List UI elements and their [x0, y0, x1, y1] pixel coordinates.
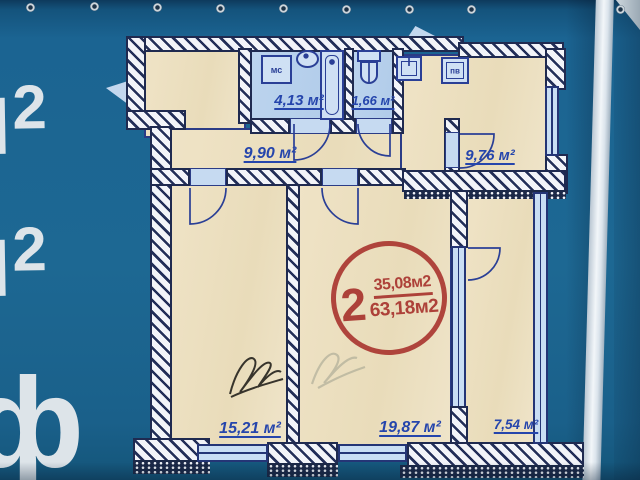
door-sill-bathroom	[290, 118, 330, 134]
door-sill-living	[322, 168, 358, 186]
watermark-m2: м2	[0, 213, 48, 308]
wall-kitchen-bottom	[402, 170, 566, 192]
grommet-icon	[26, 3, 35, 12]
window-bedroom	[197, 444, 268, 462]
watermark-letter: ф	[0, 352, 84, 480]
door-sill-bedroom	[190, 168, 226, 186]
banner-bottom-shadow	[0, 462, 640, 480]
sink-icon	[296, 50, 319, 68]
watermark-m2: м2	[0, 71, 48, 166]
wall-kitchen-right-upper	[545, 48, 566, 90]
window-balcony-glazing	[533, 192, 548, 444]
stamp-rooms-count: 2	[339, 281, 368, 329]
grommet-icon	[342, 5, 351, 14]
wall-hall-bathroom	[238, 48, 252, 124]
area-label-living: 19,87 м²	[350, 419, 470, 437]
banner-right-edge	[614, 0, 640, 480]
washing-machine-icon: мс	[261, 55, 292, 84]
room-bedroom	[170, 184, 288, 446]
wall-top	[126, 36, 464, 52]
area-label-hall: 9,90 м²	[200, 145, 340, 163]
grommet-icon	[153, 3, 162, 12]
grommet-icon	[90, 2, 99, 11]
area-label-kitchen: 9,76 м²	[430, 147, 550, 164]
stamp-area-total: 63,18м2	[369, 294, 439, 322]
grommet-icon	[405, 5, 414, 14]
area-label-bathroom: 4,13 м²	[252, 92, 346, 109]
washer-label: мс	[263, 65, 290, 75]
watermark-sup: 2	[12, 77, 48, 140]
room-balcony	[464, 192, 536, 444]
wall-bedroom-living	[286, 184, 300, 448]
grommet-icon	[216, 4, 225, 13]
door-sill-wc	[356, 118, 392, 134]
wall-hall-bottom-a	[150, 168, 190, 186]
watermark-sup: 2	[12, 219, 48, 282]
toilet-bowl-icon	[360, 61, 378, 84]
window-kitchen	[545, 86, 559, 156]
wall-left-upper	[126, 36, 146, 120]
balcony-door-window	[451, 246, 466, 408]
kitchen-sink-icon	[396, 56, 422, 81]
area-label-wc: 1,66 м²	[336, 93, 410, 108]
wall-hall-bottom-c	[358, 168, 406, 186]
banner-photo: м2 м2 ф	[0, 0, 640, 480]
window-living	[338, 444, 407, 462]
wall-bath-hall-b	[330, 118, 356, 134]
vent-label: пв	[443, 66, 467, 75]
area-label-bedroom: 15,21 м²	[190, 420, 310, 438]
wall-hall-bottom-b	[226, 168, 322, 186]
wall-living-balcony-upper	[450, 190, 468, 248]
area-label-balcony: 7,54 м²	[480, 417, 552, 432]
grommet-icon	[616, 5, 625, 14]
grommet-icon	[467, 5, 476, 14]
stamp-areas: 35,08м2 63,18м2	[367, 272, 439, 322]
wall-bath-hall-a	[250, 118, 290, 134]
vent-box-icon: пв	[441, 57, 469, 84]
grommet-icon	[279, 4, 288, 13]
bathtub-icon	[320, 50, 344, 120]
wall-bathroom-wc	[344, 48, 354, 124]
wall-bath-hall-c	[392, 118, 404, 134]
kitchen-sink-inner	[401, 61, 417, 76]
